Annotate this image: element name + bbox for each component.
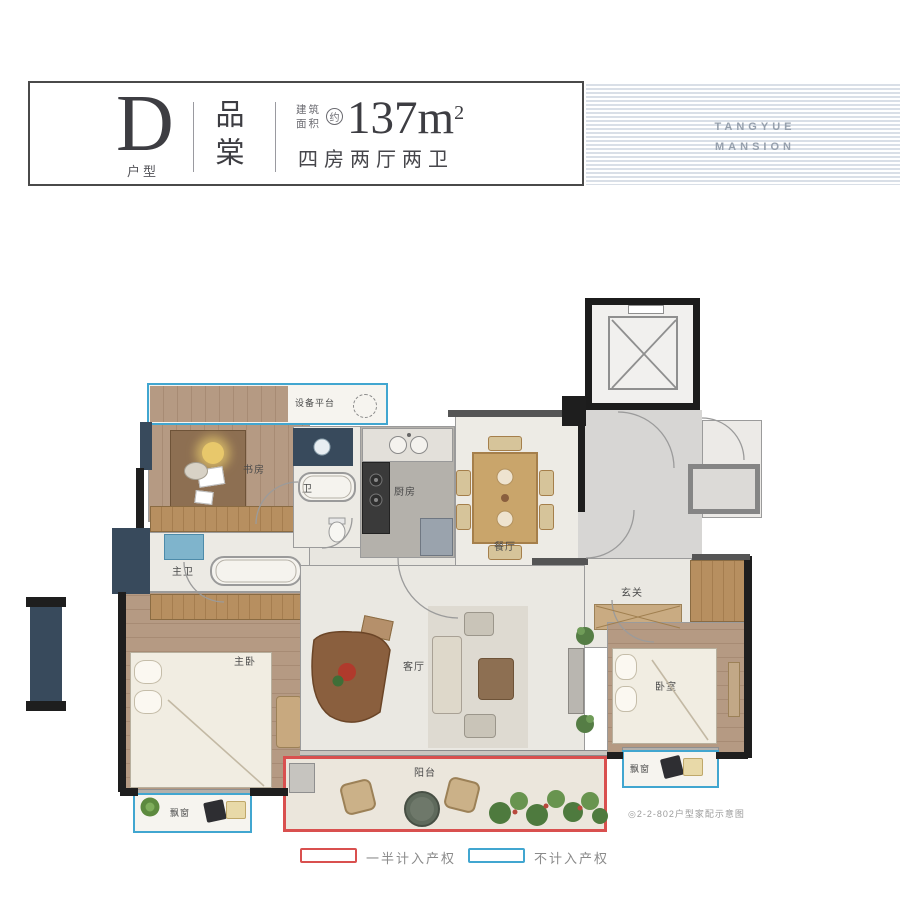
- bed-pillow: [134, 660, 162, 684]
- master-wardrobe: [150, 594, 308, 620]
- dining-chair: [456, 470, 471, 496]
- tv-console: [568, 648, 584, 714]
- dining-chair: [539, 504, 554, 530]
- unit-type-letter: D: [116, 84, 174, 164]
- floorplan-page: D 户型 品棠 建筑 面积 约 137m2 四房两厅两卫 TANGYUE MAN…: [0, 0, 900, 900]
- dining-table: [472, 452, 538, 544]
- elevator-door: [628, 305, 664, 314]
- room-master-bedroom-label: 主卧: [234, 653, 256, 668]
- bay-window-left-label: 飘窗: [170, 806, 190, 819]
- kitchen-stove: [362, 462, 390, 534]
- hvac-unit-icon: [353, 394, 377, 418]
- legend-half-counted-swatch: [300, 848, 357, 863]
- area-exponent: 2: [454, 102, 464, 124]
- desk-paper: [194, 490, 213, 505]
- dining-chair: [456, 504, 471, 530]
- wall-segment: [118, 592, 126, 792]
- wall-segment: [250, 788, 288, 796]
- shared-lobby: [578, 410, 702, 558]
- banner-wordmark: TANGYUE MANSION: [700, 118, 810, 158]
- room-kitchen-label: 厨房: [394, 483, 416, 498]
- wall-segment: [532, 558, 588, 565]
- room-master-bath-label: 主卫: [172, 563, 194, 578]
- armchair: [464, 714, 496, 738]
- sofa: [432, 636, 462, 714]
- wall-segment: [120, 788, 138, 796]
- room-spec: 四房两厅两卫: [298, 143, 454, 172]
- dining-chair: [488, 436, 522, 451]
- room-living-label: 客厅: [403, 658, 425, 673]
- balcony-table: [404, 791, 440, 827]
- pillow-icon: [203, 799, 227, 823]
- coffee-table: [478, 658, 514, 700]
- unit-type-suffix: 户型: [127, 161, 159, 180]
- bay-window-right-label: 飘窗: [630, 762, 650, 775]
- header-divider: [193, 102, 194, 172]
- window-strip: [140, 422, 152, 470]
- master-bathtub: [210, 556, 302, 586]
- area-block: 建筑 面积 约 137m2: [296, 95, 464, 142]
- bed-pillow: [134, 690, 162, 714]
- wall-segment: [692, 554, 750, 560]
- brand-name: 品棠: [206, 99, 248, 179]
- room-foyer-label: 玄关: [621, 584, 643, 599]
- pillow-icon: [226, 801, 246, 819]
- walkin-closet: [690, 560, 748, 622]
- master-bath-sink: [164, 534, 204, 560]
- header-divider: [275, 102, 276, 172]
- dining-chair: [539, 470, 554, 496]
- room-dining-label: 餐厅: [494, 538, 516, 553]
- legend-half-counted-label: 一半计入产权: [366, 848, 456, 867]
- bath-vanity: [293, 428, 353, 466]
- wall-segment: [26, 701, 66, 711]
- balcony-cabinet: [289, 763, 315, 793]
- wall-segment: [607, 752, 623, 759]
- kitchen-counter: [362, 428, 453, 462]
- room-equipment-platform-label: 设备平台: [295, 396, 335, 409]
- area-label: 建筑 面积: [296, 104, 321, 131]
- bed-pillow: [615, 654, 637, 680]
- room-bath-label: 卫: [302, 480, 313, 495]
- wall-segment: [744, 556, 752, 758]
- room-balcony-label: 阳台: [414, 764, 436, 779]
- wall-segment: [716, 752, 748, 759]
- wall-segment: [136, 468, 144, 528]
- equipment-platform-woodstrip: [150, 386, 288, 422]
- wall-segment: [26, 597, 66, 607]
- area-approx-badge: 约: [326, 108, 343, 125]
- room-study-label: 书房: [243, 461, 265, 476]
- bed-pillow: [615, 686, 637, 712]
- utility-shaft: [688, 464, 760, 514]
- neighbor-window-strip: [30, 606, 62, 702]
- armchair: [464, 612, 494, 636]
- area-value: 137m2: [347, 95, 464, 142]
- plan-caption: ◎2-2-802户型家配示意图: [628, 807, 745, 820]
- legend-not-counted-swatch: [468, 848, 525, 863]
- closet-strip: [150, 506, 308, 532]
- window-strip: [112, 528, 150, 594]
- desk-lamp-icon: [202, 442, 224, 464]
- refrigerator: [420, 518, 453, 556]
- bedroom-bench: [728, 662, 740, 717]
- wall-segment: [578, 408, 585, 512]
- room-bedroom-label: 卧室: [655, 678, 677, 693]
- pillow-icon: [683, 758, 703, 776]
- legend-not-counted-label: 不计入产权: [534, 848, 609, 867]
- wall-segment: [448, 410, 570, 417]
- desk-chair: [184, 462, 208, 480]
- bedroom-chair: [276, 696, 302, 748]
- elevator-car: [608, 316, 678, 390]
